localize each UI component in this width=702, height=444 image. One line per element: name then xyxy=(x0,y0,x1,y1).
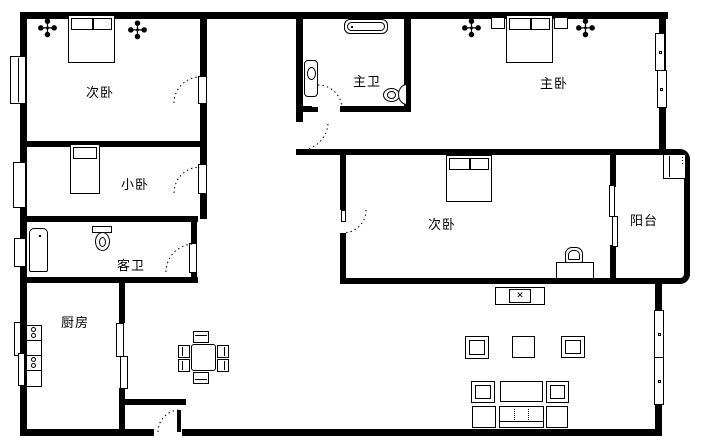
chair-back xyxy=(224,347,225,356)
chair-back xyxy=(195,379,207,380)
centerbed-door-arc xyxy=(343,210,366,233)
washer-knobs xyxy=(682,157,683,158)
toilet-bowl-inner xyxy=(387,91,396,99)
coffee-table xyxy=(500,381,543,402)
kitchen-counter-stove xyxy=(26,325,42,387)
armchair xyxy=(561,336,585,358)
door-arcs-layer xyxy=(0,0,702,444)
bedroom1-double-bed xyxy=(68,15,115,63)
entry-door-arc xyxy=(158,410,180,432)
dining-chair xyxy=(193,331,209,343)
sofa-base xyxy=(500,421,543,427)
shower-knob xyxy=(39,235,41,237)
room-label-smallroom: 小卧 xyxy=(121,174,149,193)
bedroom1-door-arc xyxy=(174,77,200,103)
room-label-balcony: 阳台 xyxy=(630,210,658,229)
bathtub xyxy=(344,19,388,34)
armchair-seat xyxy=(565,340,581,354)
tv-icon: ✕ xyxy=(509,289,531,303)
three-seat-sofa xyxy=(499,406,544,428)
washing-machine xyxy=(663,154,686,179)
shower-cabinet xyxy=(29,228,48,272)
end-table xyxy=(472,406,496,428)
centerbed-double-bed xyxy=(446,155,492,202)
dining-chair xyxy=(178,345,190,358)
counter-cell xyxy=(27,371,41,385)
room-label-guestbath: 客卫 xyxy=(117,255,145,274)
room-label-centerbed: 次卧 xyxy=(428,214,456,233)
floor-plan: ✣ ✣ ✣ ✣ xyxy=(0,0,702,444)
dining-chair xyxy=(178,359,190,372)
sink-basin xyxy=(307,67,316,80)
plant-icon: ✣ xyxy=(37,16,58,41)
stove-burner xyxy=(27,356,41,371)
seat-cushion xyxy=(475,385,491,399)
armchair-seat xyxy=(469,340,485,355)
dining-table xyxy=(191,344,216,371)
masterbath-door-arc xyxy=(318,85,342,109)
counter-cell xyxy=(27,341,41,356)
bathtub-drain xyxy=(351,26,353,28)
chair-back xyxy=(195,335,207,336)
bed-pillows xyxy=(509,18,550,30)
guestbath-door-arc xyxy=(166,244,194,272)
bed-pillows xyxy=(449,158,489,170)
sofa-side-seat xyxy=(471,381,495,403)
plant-icon: ✣ xyxy=(461,16,482,41)
end-table xyxy=(546,406,568,428)
dining-chair xyxy=(193,372,209,384)
bed-pillows xyxy=(71,18,112,30)
room-label-masterbed: 主卧 xyxy=(540,73,568,92)
room-label-bedroom1: 次卧 xyxy=(86,82,114,101)
chair-seat xyxy=(568,250,580,260)
guest-toilet-bowl xyxy=(95,232,110,251)
room-label-masterbath: 主卫 xyxy=(353,71,381,90)
nightstand-left xyxy=(491,17,505,29)
nightstand-right xyxy=(554,17,568,29)
chair-back xyxy=(224,361,225,370)
side-table xyxy=(512,336,535,358)
seat-cushion xyxy=(550,385,565,399)
desk xyxy=(556,262,594,279)
plant-icon: ✣ xyxy=(575,16,596,41)
guest-toilet-bowl-inner xyxy=(99,237,106,247)
chair-back xyxy=(182,347,183,356)
master-double-bed xyxy=(506,15,553,63)
masterbed-door-arc xyxy=(300,122,328,150)
sofa-side-seat xyxy=(546,381,569,403)
stove-burner xyxy=(27,326,41,341)
chair-back xyxy=(182,361,183,370)
smallroom-door-arc xyxy=(174,167,200,193)
single-bed xyxy=(70,144,100,194)
armchair xyxy=(465,336,489,359)
desk-chair xyxy=(565,247,583,263)
plant-icon: ✣ xyxy=(127,18,148,43)
dining-chair xyxy=(217,345,229,358)
bathroom-sink xyxy=(304,60,318,97)
washer-door-line xyxy=(669,156,670,177)
bed-pillow xyxy=(73,147,97,159)
room-label-kitchen: 厨房 xyxy=(61,312,89,331)
dining-chair xyxy=(217,359,229,372)
